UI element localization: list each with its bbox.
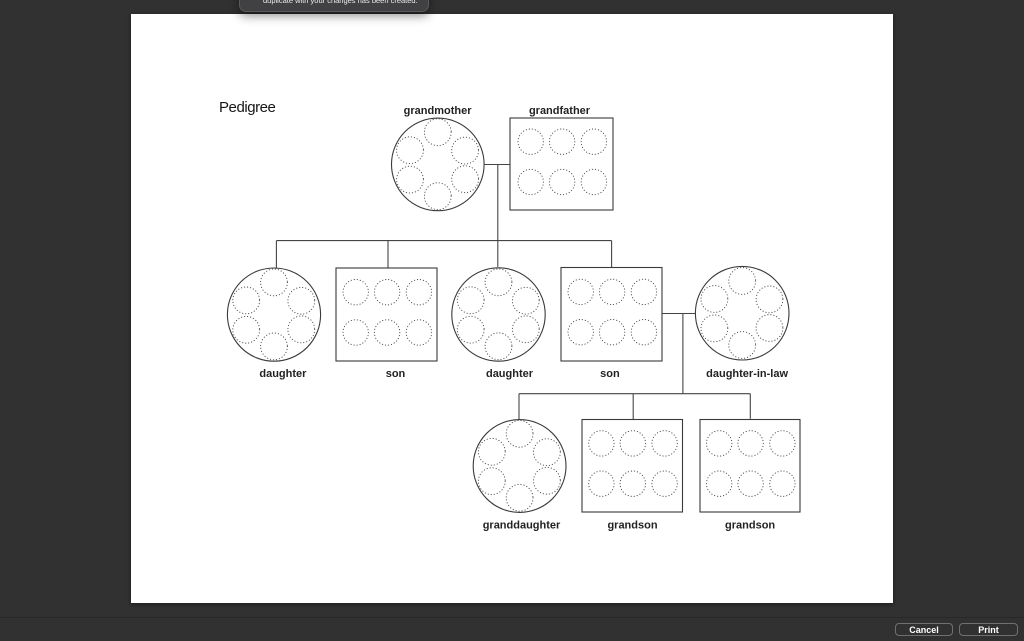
svg-text:grandmother: grandmother: [404, 105, 473, 117]
svg-text:son: son: [386, 368, 406, 380]
svg-text:grandson: grandson: [607, 520, 657, 532]
svg-text:daughter-in-law: daughter-in-law: [706, 368, 788, 380]
svg-text:granddaughter: granddaughter: [483, 520, 561, 532]
svg-text:grandson: grandson: [725, 520, 775, 532]
svg-text:grandfather: grandfather: [529, 105, 591, 117]
svg-text:daughter: daughter: [259, 368, 307, 380]
svg-text:daughter: daughter: [486, 368, 534, 380]
svg-text:son: son: [600, 368, 620, 380]
svg-text:Pedigree: Pedigree: [219, 99, 276, 116]
